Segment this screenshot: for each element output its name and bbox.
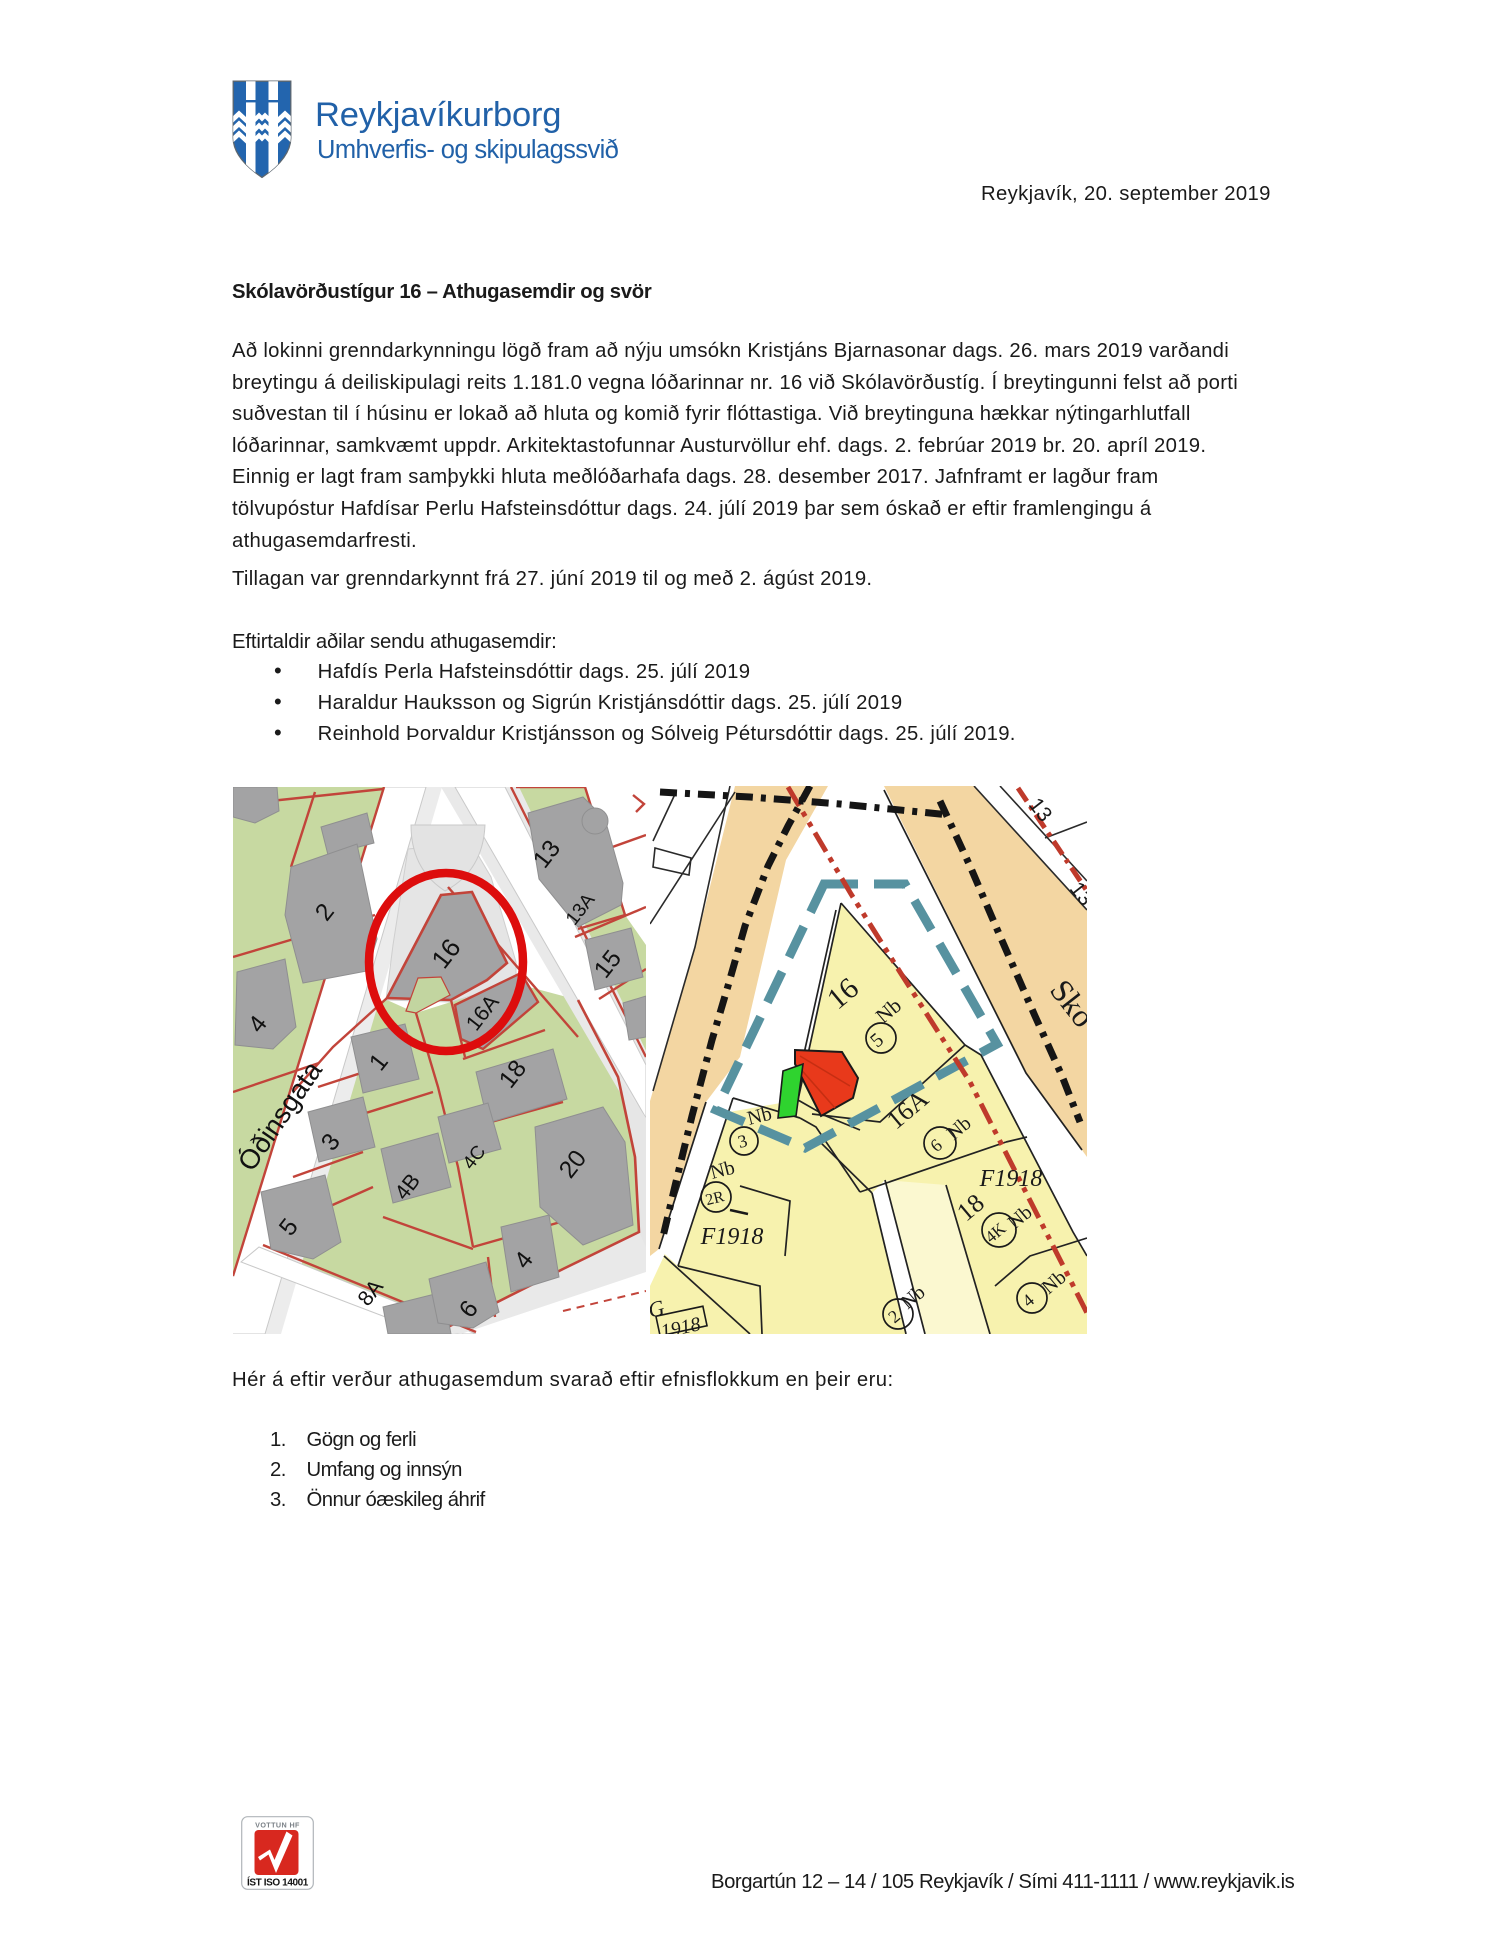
svg-text:F1918: F1918 bbox=[700, 1224, 764, 1250]
svg-text:F1918: F1918 bbox=[979, 1166, 1043, 1192]
svg-text:VOTTUN HF: VOTTUN HF bbox=[255, 1821, 300, 1830]
svg-text:ÍST ISO 14001: ÍST ISO 14001 bbox=[247, 1876, 309, 1889]
